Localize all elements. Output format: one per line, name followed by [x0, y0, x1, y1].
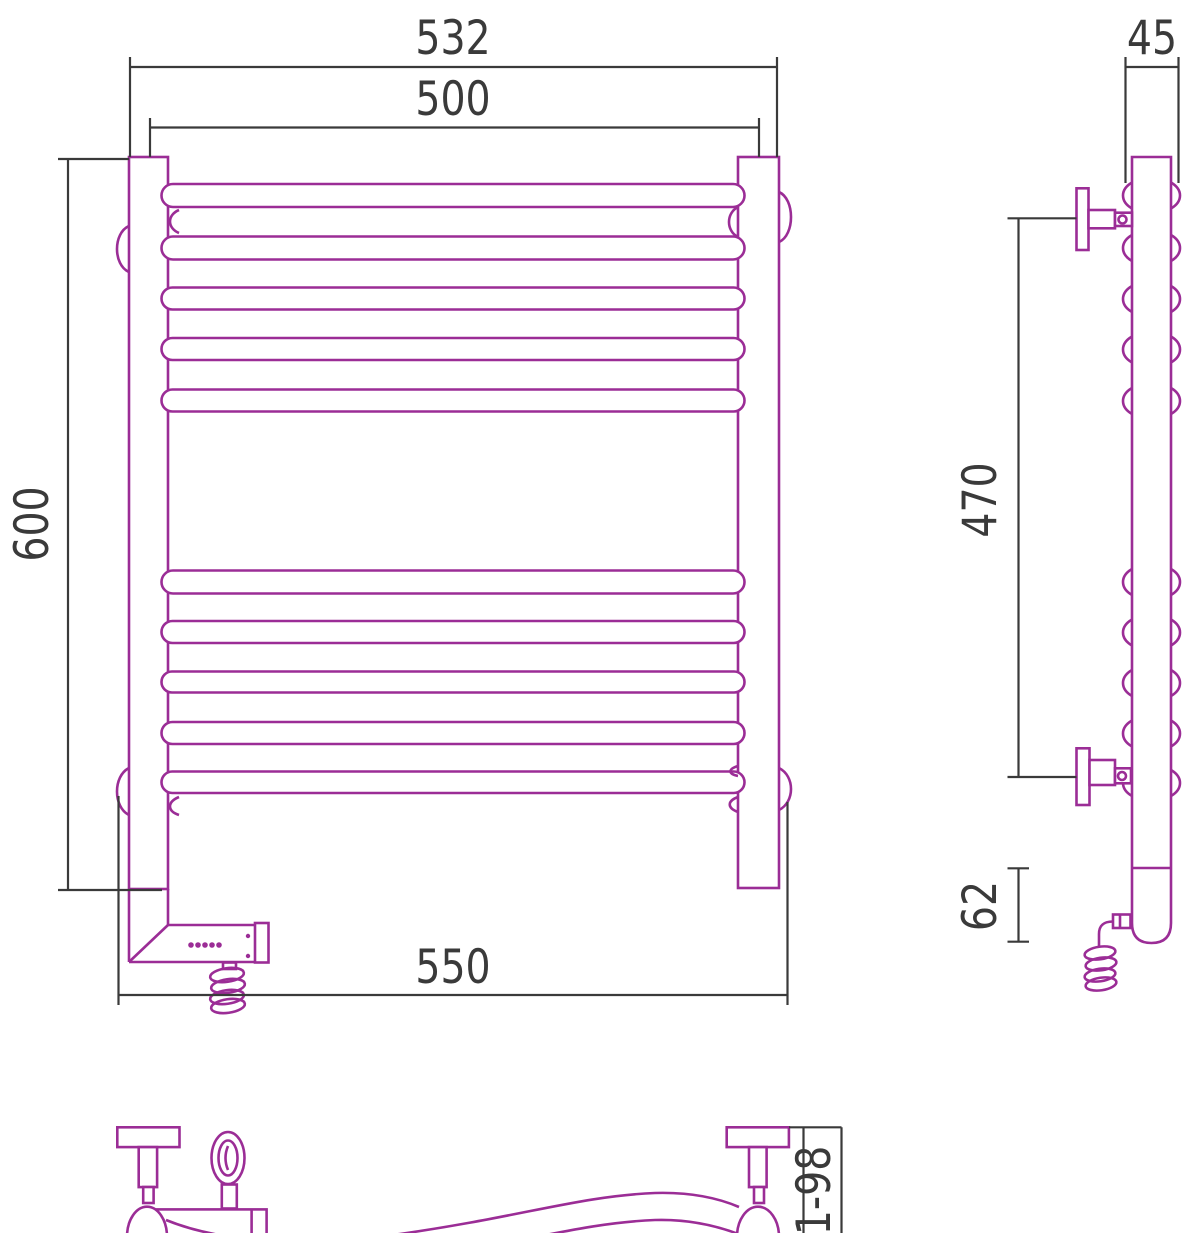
rail	[162, 338, 745, 360]
rail	[162, 184, 745, 207]
rail	[162, 571, 745, 594]
towel-rail-technical-drawing: 532 500 600 550	[0, 0, 1200, 1233]
screw-dot	[246, 954, 250, 958]
dim-label-lower-offset: 62	[954, 881, 1008, 931]
side-view: 45 470 62	[954, 12, 1180, 993]
electric-control-unit	[129, 889, 269, 1015]
thermostat-knob	[212, 1132, 245, 1209]
drawing-canvas: 532 500 600 550	[0, 0, 1200, 1233]
bottom-control-box	[157, 1209, 267, 1233]
bottom-right-bracket	[727, 1127, 789, 1203]
led-indicator-dots	[188, 942, 222, 948]
rail	[162, 288, 745, 310]
rail	[162, 621, 745, 643]
dim-label-bottom-width: 550	[415, 941, 490, 995]
lower-wall-bracket	[1077, 748, 1132, 805]
bottom-right-post-section	[737, 1207, 779, 1233]
dim-label-height: 600	[6, 486, 60, 561]
dimension-500: 500	[150, 73, 759, 157]
screw-dot	[246, 934, 250, 938]
dim-label-depth: 45	[1127, 12, 1177, 66]
dim-label-overall-width: 532	[415, 12, 490, 66]
coiled-power-cord	[209, 963, 246, 1016]
dim-label-bracket-spacing: 470	[954, 462, 1008, 537]
bottom-view: 81-98	[117, 1127, 842, 1233]
dimension-470: 470	[954, 218, 1077, 777]
control-unit-end-cap	[255, 923, 269, 963]
side-post	[1132, 157, 1171, 943]
front-view: 532 500 600 550	[6, 12, 791, 1015]
rail	[162, 722, 745, 744]
dim-label-pipe-centers: 500	[415, 73, 490, 127]
front-rails	[162, 184, 745, 793]
rail	[162, 237, 745, 260]
dim-label-wall-clearance: 81-98	[788, 1146, 842, 1233]
rail	[162, 672, 745, 693]
rail	[162, 772, 745, 794]
dimension-62: 62	[954, 868, 1029, 941]
side-heating-element	[1084, 915, 1131, 993]
dimension-550: 550	[119, 796, 788, 1005]
rail	[162, 390, 745, 412]
bottom-left-bracket	[117, 1127, 179, 1203]
